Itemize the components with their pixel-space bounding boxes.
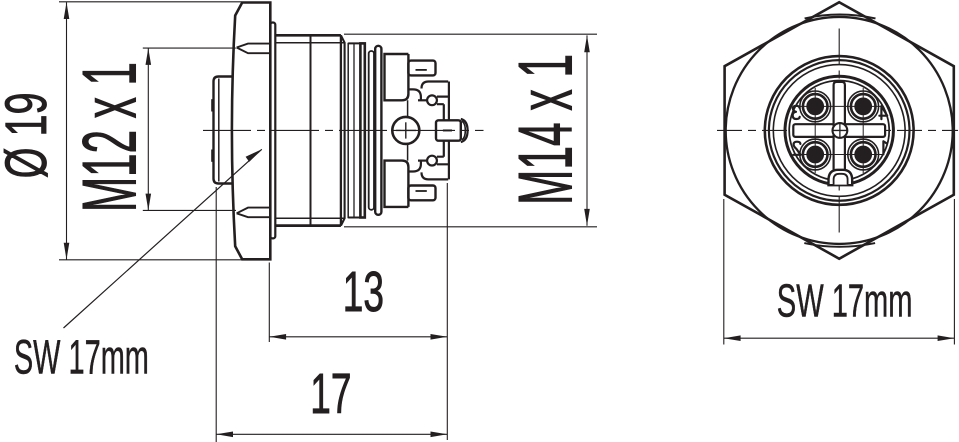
svg-text:M12 x 1: M12 x 1	[68, 62, 153, 212]
svg-text:SW 17mm: SW 17mm	[14, 331, 149, 385]
svg-text:SW 17mm: SW 17mm	[777, 274, 913, 326]
svg-text:13: 13	[343, 260, 384, 324]
svg-text:M14 x 1: M14 x 1	[504, 54, 589, 205]
svg-text:17: 17	[310, 362, 351, 426]
svg-text:Ø 19: Ø 19	[0, 92, 59, 178]
